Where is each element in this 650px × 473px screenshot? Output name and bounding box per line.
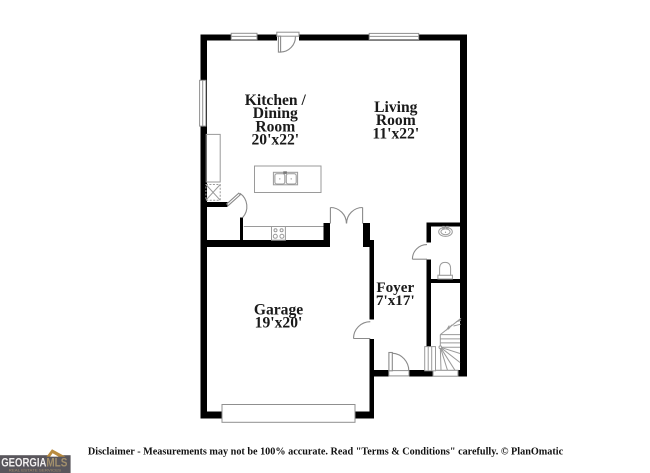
svg-text:REAL ESTATE SERVICES: REAL ESTATE SERVICES	[9, 468, 61, 472]
svg-text:19'x20': 19'x20'	[255, 315, 303, 332]
svg-text:20'x22': 20'x22'	[251, 132, 299, 149]
svg-text:Disclaimer - Measurements may: Disclaimer - Measurements may not be 100…	[88, 446, 564, 457]
svg-text:11'x22': 11'x22'	[372, 125, 419, 142]
svg-text:7'x17': 7'x17'	[376, 292, 415, 309]
